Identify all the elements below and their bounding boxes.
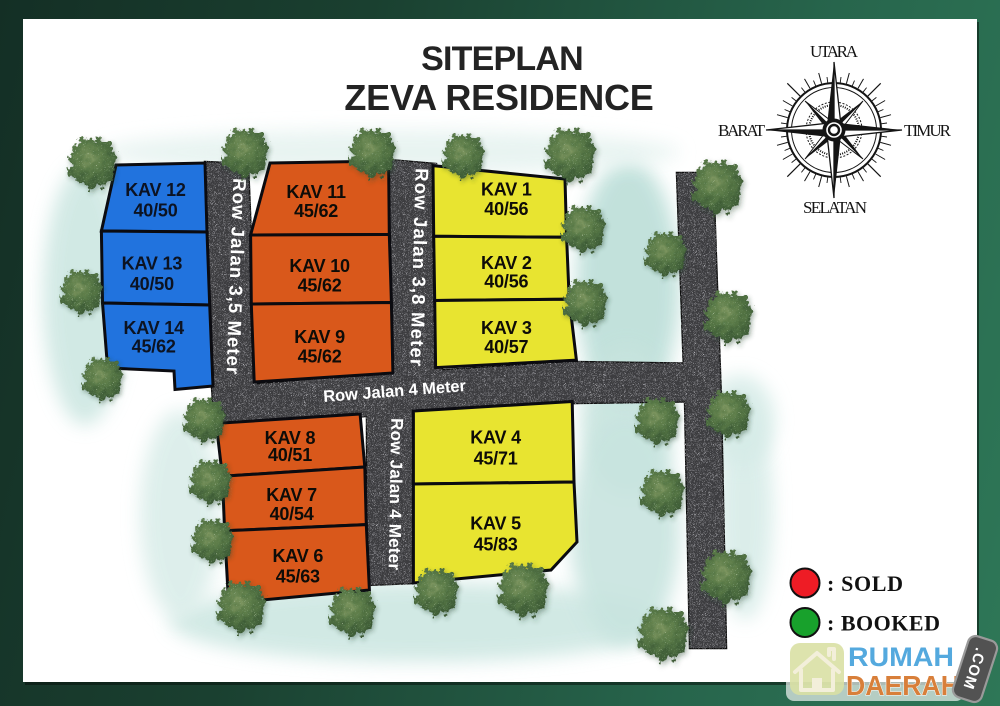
svg-text:45/63: 45/63 bbox=[276, 566, 320, 586]
svg-text:45/62: 45/62 bbox=[294, 201, 338, 221]
svg-text:ZEVA RESIDENCE: ZEVA RESIDENCE bbox=[344, 77, 653, 118]
svg-text:40/56: 40/56 bbox=[484, 199, 528, 219]
svg-text:45/71: 45/71 bbox=[474, 449, 518, 469]
svg-text:40/57: 40/57 bbox=[484, 337, 528, 357]
svg-text:RUMAH: RUMAH bbox=[848, 642, 954, 672]
svg-text:40/54: 40/54 bbox=[270, 504, 314, 524]
svg-text:KAV 14: KAV 14 bbox=[123, 318, 184, 338]
svg-text:BARAT: BARAT bbox=[718, 121, 766, 140]
svg-text:KAV 1: KAV 1 bbox=[481, 180, 532, 200]
svg-text:DAERAH: DAERAH bbox=[846, 670, 960, 701]
svg-text:KAV 10: KAV 10 bbox=[289, 256, 350, 276]
svg-text:KAV 2: KAV 2 bbox=[481, 253, 532, 273]
svg-text:Row Jalan 4 Meter: Row Jalan 4 Meter bbox=[385, 418, 407, 571]
svg-text:40/50: 40/50 bbox=[133, 200, 177, 220]
svg-text:KAV 11: KAV 11 bbox=[286, 182, 346, 202]
svg-text:TIMUR: TIMUR bbox=[904, 121, 952, 140]
svg-text:40/50: 40/50 bbox=[130, 274, 174, 294]
svg-text:KAV 7: KAV 7 bbox=[266, 485, 317, 505]
svg-text:45/62: 45/62 bbox=[298, 276, 342, 296]
svg-text:SITEPLAN: SITEPLAN bbox=[421, 40, 583, 78]
svg-text:40/56: 40/56 bbox=[484, 272, 528, 292]
svg-text:KAV 6: KAV 6 bbox=[272, 546, 323, 566]
svg-text:45/83: 45/83 bbox=[474, 535, 518, 555]
svg-text:SELATAN: SELATAN bbox=[803, 198, 867, 217]
svg-text:KAV 4: KAV 4 bbox=[470, 428, 521, 448]
svg-text:: SOLD: : SOLD bbox=[827, 571, 903, 596]
svg-text:45/62: 45/62 bbox=[132, 337, 176, 357]
svg-text:KAV 12: KAV 12 bbox=[125, 180, 186, 200]
svg-text:UTARA: UTARA bbox=[810, 42, 859, 61]
svg-text:KAV 3: KAV 3 bbox=[481, 318, 532, 338]
svg-text:KAV 13: KAV 13 bbox=[122, 254, 183, 274]
svg-text:: BOOKED: : BOOKED bbox=[827, 611, 940, 636]
svg-text:KAV 5: KAV 5 bbox=[470, 514, 521, 534]
svg-text:45/62: 45/62 bbox=[298, 346, 342, 366]
svg-text:40/51: 40/51 bbox=[268, 445, 312, 465]
svg-text:KAV 9: KAV 9 bbox=[294, 327, 345, 347]
